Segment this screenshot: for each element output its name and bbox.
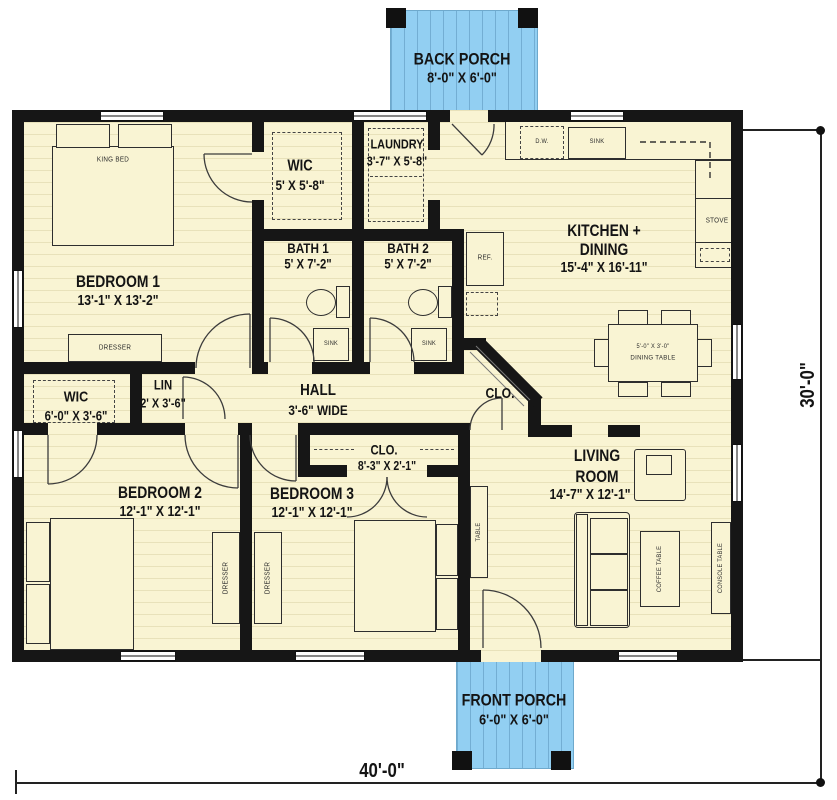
bath1-sink-label: SINK	[324, 341, 338, 347]
bedroom2-dims: 12'-1" X 12'-1"	[120, 505, 201, 520]
dresser-label: DRESSER	[99, 345, 131, 352]
bedroom3-label: BEDROOM 3	[270, 486, 354, 503]
overall-height-label: 30'-0"	[798, 362, 818, 408]
dining-chair	[618, 382, 648, 397]
dining-chair	[661, 310, 691, 325]
porch-post	[518, 8, 538, 28]
hall-label: HALL	[300, 383, 336, 399]
bedroom1-dims: 13'-1" X 13'-2"	[78, 294, 159, 309]
sofa-cushion	[590, 518, 628, 554]
wic1-dims: 5' X 5'-8"	[275, 178, 324, 192]
porch-post	[386, 8, 406, 28]
bath2-sink-label: SINK	[422, 341, 436, 347]
wall-segment	[252, 362, 268, 374]
lin-dims: 2' X 3'-6"	[140, 397, 186, 410]
window	[618, 651, 678, 661]
wic2-label: WIC	[64, 390, 89, 405]
lin-label: LIN	[154, 378, 172, 392]
wall-segment	[452, 241, 464, 374]
pillow	[26, 584, 50, 644]
wall-segment	[312, 362, 370, 374]
dining-chair	[661, 382, 691, 397]
window	[353, 111, 427, 121]
bedroom3-closet-dims: 8'-3" X 2'-1"	[358, 460, 416, 473]
wall-segment	[352, 241, 364, 362]
dining-table-label: DINING TABLE	[630, 356, 675, 363]
window	[13, 270, 23, 328]
porch-post	[452, 751, 472, 770]
wall-segment	[298, 423, 458, 435]
porch-post	[551, 751, 571, 770]
bed	[50, 518, 134, 650]
kitchen-label-2: DINING	[580, 242, 629, 259]
dining-chair	[594, 339, 609, 367]
living-room-label-1: LIVING	[574, 448, 620, 465]
kitchen-sink-label: SINK	[590, 139, 605, 146]
corner-closet-label: CLO.	[485, 387, 514, 402]
dimension-tick	[15, 770, 17, 794]
closet-shelf	[420, 449, 454, 450]
bedroom3-dims: 12'-1" X 12'-1"	[272, 506, 353, 521]
wall-segment	[240, 423, 252, 662]
sofa-table-label: TABLE	[476, 523, 482, 542]
kitchen-label-1: KITCHEN +	[567, 223, 641, 240]
bedroom2-label: BEDROOM 2	[118, 485, 202, 502]
pillow	[118, 124, 172, 148]
window	[13, 430, 23, 478]
wall-segment	[608, 425, 640, 437]
back-porch-dims: 8'-0" X 6'-0"	[427, 71, 497, 86]
window	[570, 111, 624, 121]
window	[100, 111, 164, 121]
wall-segment	[97, 423, 185, 435]
refrigerator-label: REF.	[478, 255, 493, 262]
toilet-bowl	[408, 289, 438, 316]
dishwasher-label: D.W.	[535, 139, 548, 145]
wall-segment	[452, 338, 486, 350]
dresser-label: DRESSER	[223, 562, 230, 594]
wall-segment	[352, 122, 364, 237]
front-porch-label: FRONT PORCH	[462, 692, 567, 709]
living-room-label-2: ROOM	[575, 469, 618, 486]
toilet-tank	[336, 286, 350, 318]
sofa-cushion	[590, 590, 628, 626]
sofa-back	[576, 514, 588, 626]
bath1-label: BATH 1	[287, 241, 329, 255]
microwave-shelf	[700, 248, 730, 262]
wall-segment	[528, 425, 572, 437]
wall-segment	[12, 362, 195, 374]
dresser-label: DRESSER	[265, 562, 272, 594]
wic-shelves	[272, 132, 342, 220]
dimension-line-bottom	[16, 782, 822, 784]
stove-label: STOVE	[706, 218, 729, 225]
dining-chair	[697, 339, 712, 367]
dimension-dot	[816, 778, 825, 787]
wall-segment	[414, 362, 464, 374]
back-porch-label: BACK PORCH	[414, 51, 511, 68]
wall-segment	[12, 110, 24, 662]
bed	[354, 520, 436, 632]
wic2-dims: 6'-0" X 3'-6"	[45, 409, 108, 423]
wall-segment	[252, 229, 464, 241]
overall-width-label: 40'-0"	[359, 761, 405, 781]
window	[732, 324, 742, 380]
bath1-dims: 5' X 7'-2"	[284, 257, 331, 271]
bedroom1-label: BEDROOM 1	[76, 274, 160, 291]
laundry-dims: 3'-7" X 5'-8"	[367, 155, 427, 168]
dimension-extension-bottom	[743, 659, 821, 661]
dining-chair	[618, 310, 648, 325]
wall-segment	[310, 465, 347, 477]
window	[295, 651, 365, 661]
pillow	[436, 524, 458, 576]
dining-table-size-label: 5'-0" X 3'-0"	[636, 344, 669, 350]
laundry-divider	[370, 176, 422, 177]
window	[732, 444, 742, 502]
coffee-table-label: COFFEE TABLE	[657, 546, 664, 593]
armchair-back	[646, 455, 672, 475]
wall-segment	[252, 122, 264, 152]
dimension-line-right	[820, 130, 822, 784]
wall-segment	[731, 110, 743, 662]
sofa-cushion	[590, 554, 628, 590]
wall-segment	[427, 465, 458, 477]
floor-plan: BACK PORCH 8'-0" X 6'-0" FRONT PORCH 6'-…	[0, 0, 837, 800]
dimension-dot	[816, 126, 825, 135]
wall-segment	[458, 423, 470, 662]
console-table-label: CONSOLE TABLE	[718, 543, 724, 593]
wall-segment	[252, 200, 264, 374]
pantry-shelf	[466, 292, 498, 316]
bath2-label: BATH 2	[387, 241, 429, 255]
front-porch-dims: 6'-0" X 6'-0"	[479, 713, 549, 728]
wall-segment	[298, 423, 310, 477]
wic1-label: WIC	[287, 158, 312, 174]
closet-shelf	[314, 449, 354, 450]
wall-segment	[428, 122, 440, 150]
laundry-label: LAUNDRY	[371, 138, 424, 151]
kitchen-dims: 15'-4" X 16'-11"	[560, 261, 647, 276]
pillow	[56, 124, 110, 148]
bedroom3-closet-label: CLO.	[370, 443, 397, 457]
window	[120, 651, 176, 661]
dimension-extension-top	[743, 129, 821, 131]
pillow	[436, 578, 458, 630]
living-room-dims: 14'-7" X 12'-1"	[550, 488, 631, 503]
pillow	[26, 522, 50, 582]
toilet-bowl	[306, 289, 336, 316]
toilet-tank	[438, 286, 452, 318]
dining-table	[608, 324, 698, 382]
hall-dims: 3'-6" WIDE	[288, 403, 347, 417]
king-bed-label: KING BED	[97, 157, 129, 164]
bath2-dims: 5' X 7'-2"	[384, 257, 431, 271]
